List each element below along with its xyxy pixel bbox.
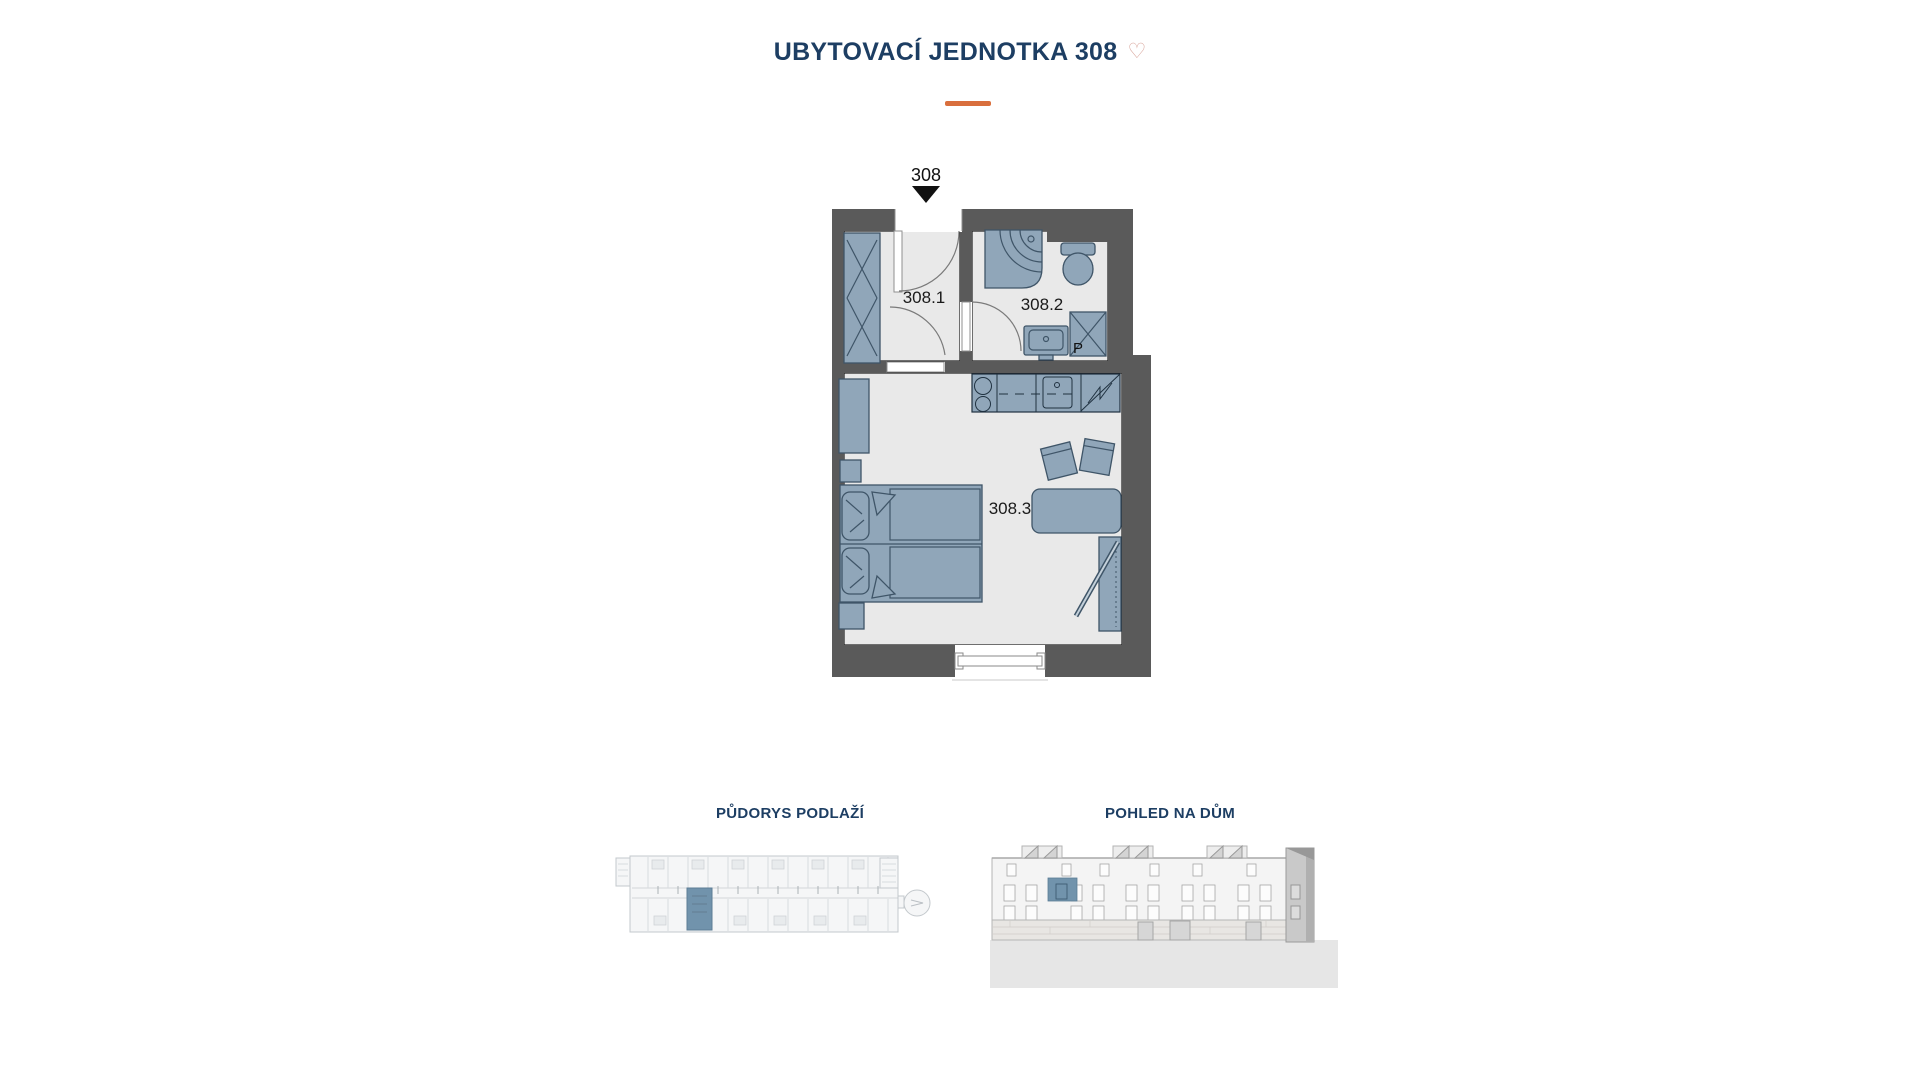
- building-view-thumbnail[interactable]: [985, 843, 1340, 995]
- stair-tower: [904, 890, 930, 916]
- nightstand: [840, 460, 861, 482]
- dormers: [1022, 846, 1247, 858]
- entrance-door: [1246, 922, 1261, 940]
- toilet: [1061, 243, 1095, 285]
- pillow: [842, 492, 869, 540]
- wardrobe: [839, 379, 869, 453]
- chair: [1079, 439, 1114, 476]
- bathroom-label: 308.2: [1021, 295, 1064, 314]
- page-title: UBYTOVACÍ JEDNOTKA 308: [774, 38, 1118, 67]
- shower: [985, 230, 1042, 288]
- washing-machine-space: P: [1070, 312, 1106, 357]
- pillow: [842, 548, 869, 594]
- bench: [839, 603, 864, 629]
- kitchenette-counter: [972, 374, 1120, 412]
- double-bed: [840, 485, 982, 602]
- stair-core: [880, 858, 898, 888]
- facade: [992, 846, 1286, 940]
- page: UBYTOVACÍ JEDNOTKA 308 ♡ 308: [0, 0, 1920, 1080]
- washing-machine-label: P: [1073, 340, 1083, 357]
- storey-building-outline: [616, 856, 930, 932]
- table: [1032, 489, 1121, 533]
- title-accent-divider: [945, 101, 991, 106]
- highlighted-unit: [687, 888, 712, 930]
- page-header: UBYTOVACÍ JEDNOTKA 308 ♡: [0, 38, 1920, 67]
- highlighted-unit-window: [1048, 878, 1077, 901]
- storey-plan-caption: PŮDORYS PODLAŽÍ: [610, 805, 970, 822]
- side-tower: [1286, 848, 1314, 942]
- building-view-caption: POHLED NA DŮM: [990, 805, 1350, 822]
- entrance-unit-label: 308: [911, 165, 941, 185]
- stone-base: [992, 920, 1286, 940]
- living-room-label: 308.3: [989, 499, 1032, 518]
- hall-wardrobe: [844, 233, 880, 363]
- favorite-heart-icon[interactable]: ♡: [1127, 41, 1146, 62]
- washbasin: [1024, 326, 1068, 360]
- entrance-arrow-icon: [912, 186, 940, 203]
- entrance-door: [1138, 922, 1153, 940]
- ground: [990, 940, 1338, 988]
- window: [952, 645, 1048, 680]
- storey-plan-thumbnail[interactable]: [612, 850, 937, 938]
- hall-label: 308.1: [903, 288, 946, 307]
- unit-floor-plan: 308: [830, 160, 1160, 690]
- entrance-door: [1170, 921, 1190, 940]
